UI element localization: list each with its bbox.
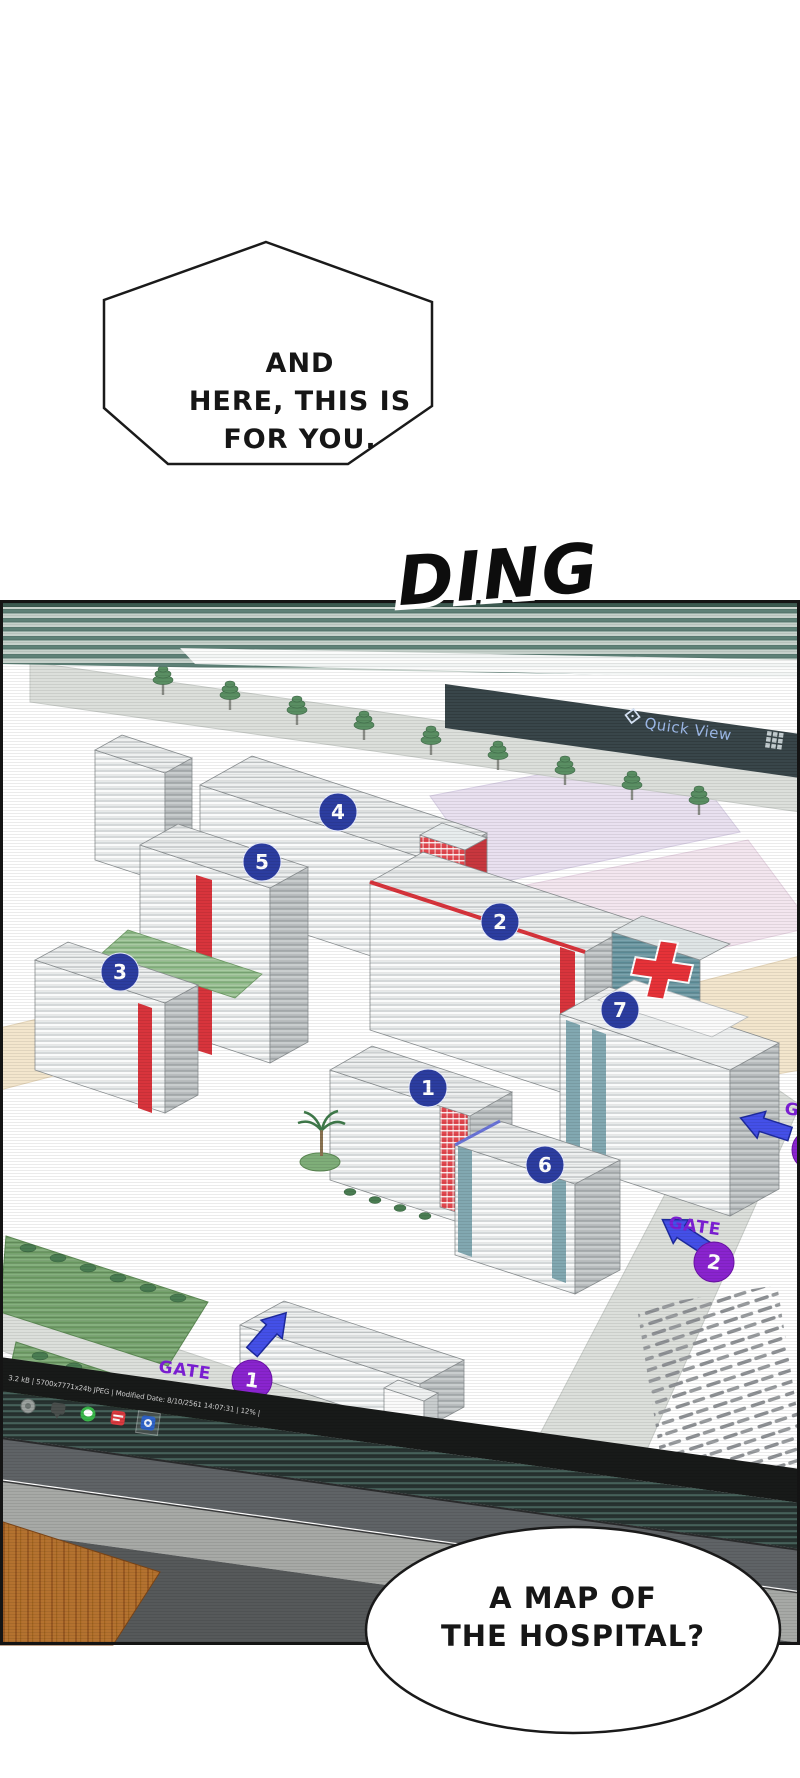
comic-art: 4 5 3 2 7 1 6 GATE 1 GATE 2 [0,0,800,1778]
top-bubble-line-3: FOR YOU. [223,424,376,455]
comic-page: 4 5 3 2 7 1 6 GATE 1 GATE 2 [0,0,800,1778]
bottom-speech-bubble: A MAP OF THE HOSPITAL? [366,1527,780,1733]
comic-panel: 4 5 3 2 7 1 6 GATE 1 GATE 2 [0,600,800,1645]
top-bubble-line-1: AND [266,348,335,379]
bottom-bubble-line-2: THE HOSPITAL? [441,1619,705,1653]
top-speech-bubble: AND HERE, THIS IS FOR YOU. [104,242,432,464]
sfx-ding: DING [395,529,603,622]
bottom-bubble-line-1: A MAP OF [489,1581,657,1615]
scanline-overlay [0,603,800,1645]
top-bubble-line-2: HERE, THIS IS [189,386,411,417]
